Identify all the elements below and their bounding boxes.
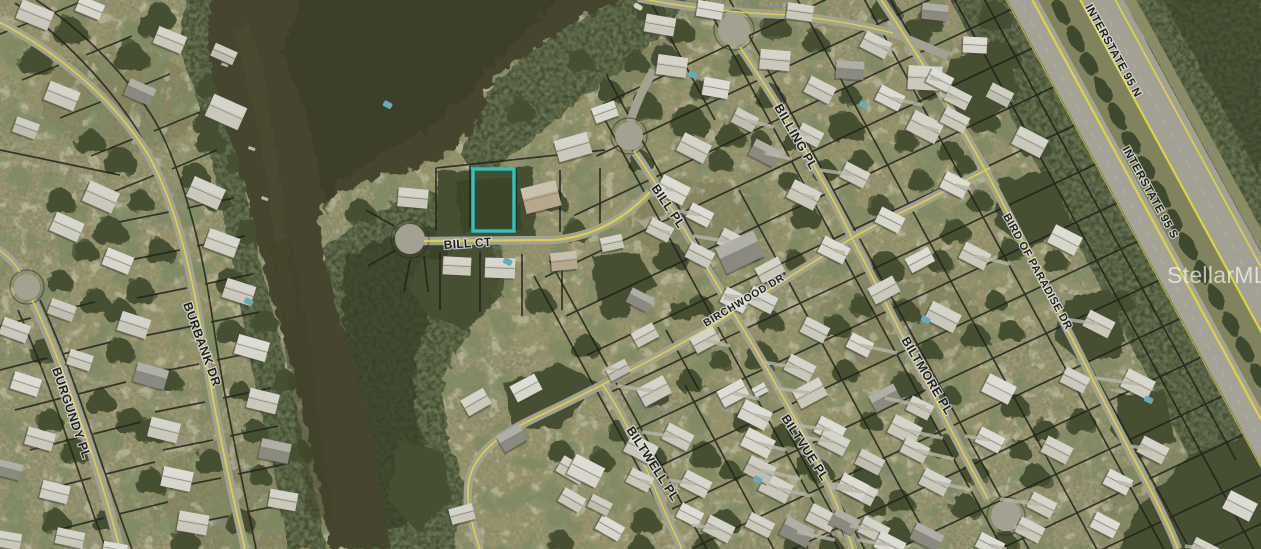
svg-text:StellarMLS: StellarMLS (1167, 262, 1261, 288)
